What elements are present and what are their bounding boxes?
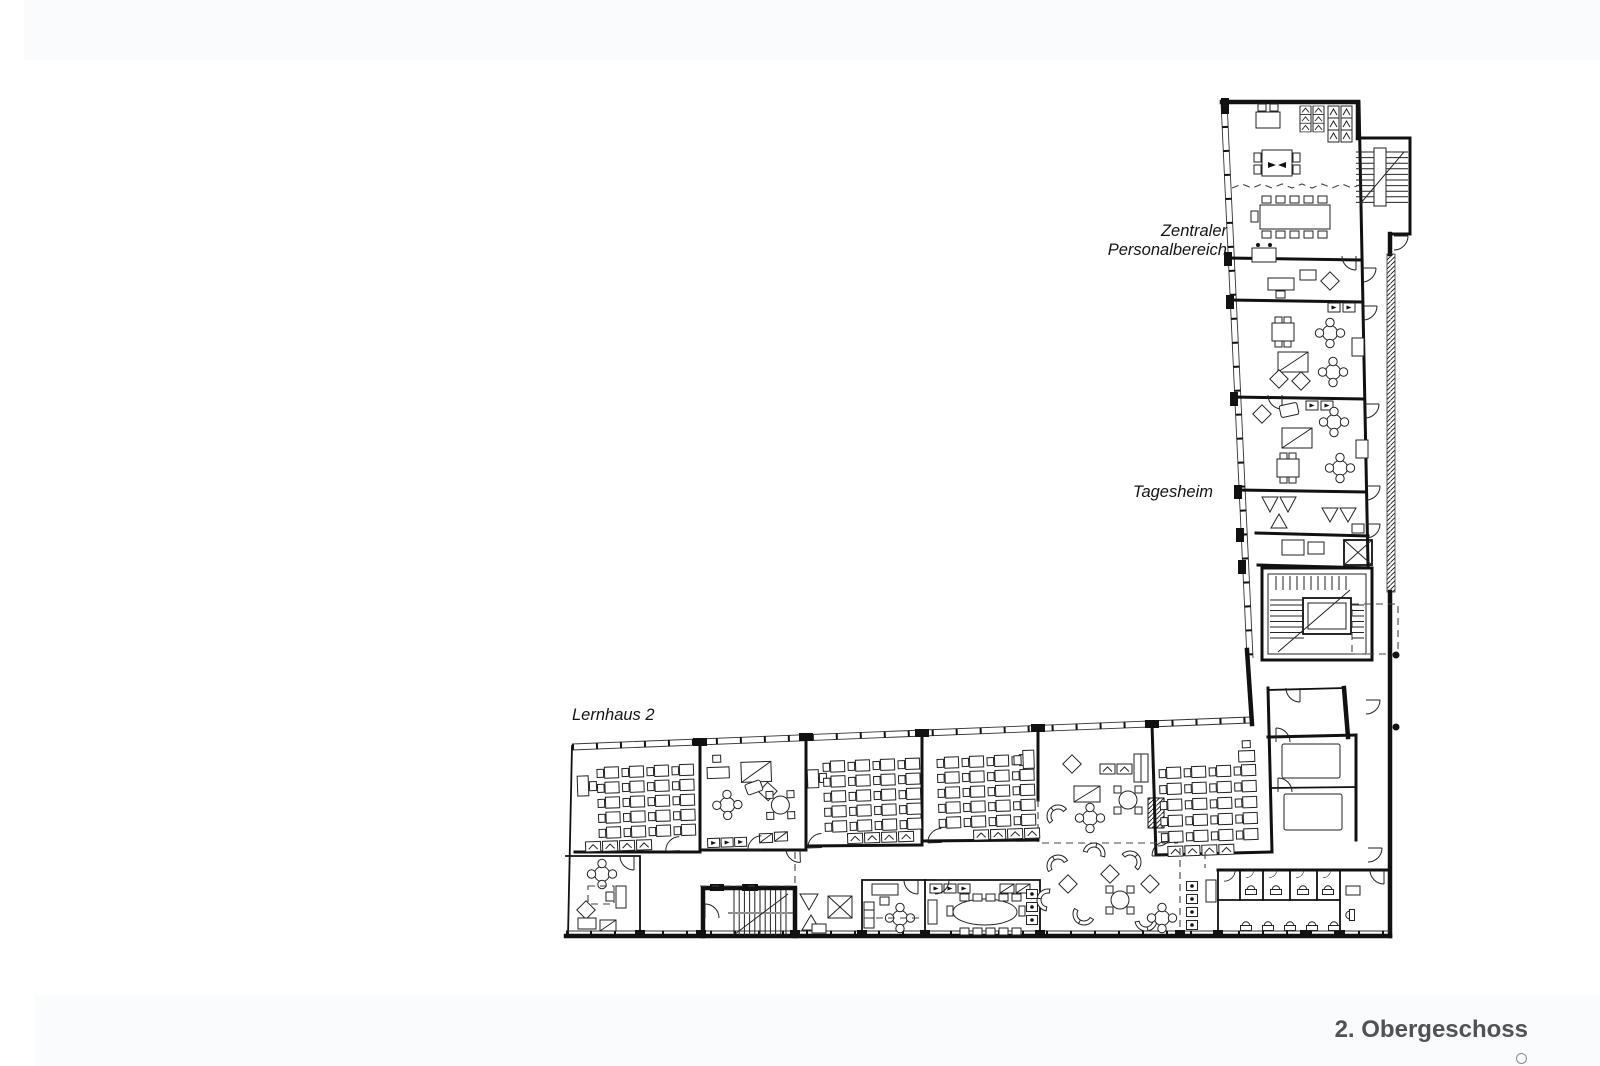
elevator	[1282, 540, 1372, 565]
area-label-lernhaus-2: Lernhaus 2	[572, 706, 655, 725]
office-mid	[862, 880, 925, 936]
area-label-zentraler-personalbereich: Zentraler Personalbereich	[1108, 222, 1227, 260]
meeting-room-south	[925, 880, 1040, 936]
cloakroom-south	[800, 894, 852, 933]
open-learning-area	[795, 754, 1178, 888]
group-room-1	[1268, 303, 1377, 409]
classroom-4	[1148, 740, 1258, 857]
stairwell-south	[703, 884, 795, 936]
floor-plan	[0, 0, 1600, 1066]
wc-block	[1206, 870, 1390, 936]
south-wing	[566, 688, 1390, 938]
area-label-tagesheim: Tagesheim	[1133, 483, 1213, 502]
office-west	[566, 856, 640, 936]
stairwell-north	[1262, 568, 1372, 660]
rest-rooms	[1268, 728, 1382, 862]
area-label-line1: Zentraler	[1161, 222, 1227, 240]
area-label-line2: Personalbereich	[1108, 241, 1227, 259]
small-office	[1268, 268, 1376, 298]
classroom-1	[577, 764, 696, 854]
junction	[1268, 604, 1400, 737]
classroom-3	[925, 750, 1040, 843]
north-arrow-partial	[1516, 1053, 1527, 1064]
cloakroom-north	[1262, 497, 1380, 538]
north-wing	[1221, 98, 1410, 936]
classroom-2	[805, 758, 922, 848]
page: Zentraler Personalbereich Tagesheim Lern…	[0, 0, 1600, 1066]
group-room-2	[1253, 401, 1380, 500]
staff-room	[1232, 104, 1359, 188]
floor-title: 2. Obergeschoss	[1335, 1016, 1528, 1044]
